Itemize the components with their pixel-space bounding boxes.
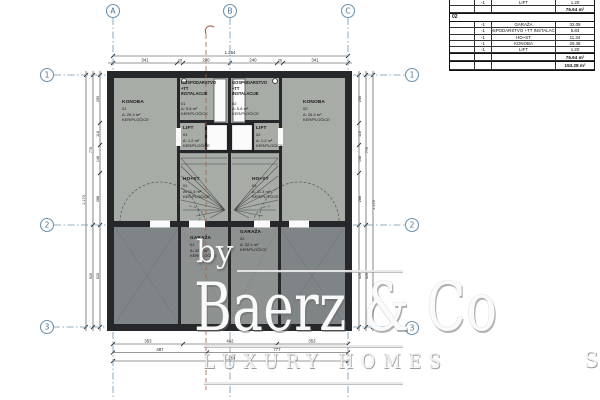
grid-bubble-3-right: 3 — [410, 324, 415, 333]
cell-label: GOSPODARSTVO +TT INSTALACIJE — [492, 28, 556, 33]
cell-unit — [450, 28, 475, 33]
grid-bubble-2-right: 2 — [410, 221, 415, 230]
cell-qty — [475, 62, 492, 69]
dim: 116 — [358, 131, 362, 137]
dim: 250 — [96, 96, 100, 102]
cell-qty: -1 — [475, 41, 492, 46]
cell-subtotal: 76.64 m² — [556, 54, 594, 60]
dim: 240 — [249, 58, 257, 63]
cell-label: HO+ST — [492, 35, 556, 40]
dim: 341 — [311, 58, 319, 63]
cell-qty: -1 — [475, 35, 492, 40]
cell-total: 153.28 m² — [556, 62, 594, 69]
cell-label: LIFT — [492, 0, 556, 5]
grid-bubble-2-left: 2 — [45, 221, 50, 230]
dim: 777 — [273, 347, 281, 352]
grid-bubble-C: C — [345, 7, 350, 16]
cell-unit — [450, 22, 475, 27]
dim: 775 — [89, 147, 93, 153]
grid-bubble-1-right: 1 — [410, 71, 415, 80]
cell-unit — [450, 62, 475, 69]
room-label-lift-02: LIFT 02 A: 1.2 m² KER/PLOČICE — [256, 126, 283, 149]
room-label-garaza-02: GARAŽA 02 A: 32.1 m² KER/PLOČICE — [240, 230, 267, 253]
room-label-lift-01: LIFT 01 A: 1.2 m² KER/PLOČICE — [183, 126, 210, 149]
table-section-02: 02 — [450, 13, 594, 22]
room-label-garaza-01: GARAŽA 01 A: 32.1 m² KER/PLOČICE — [190, 236, 217, 259]
cell-qty: -1 — [475, 47, 492, 52]
table-total-row: 153.28 m² — [450, 61, 594, 70]
cell-value: 5.83 — [556, 28, 594, 33]
cell-unit — [450, 6, 475, 12]
dim: 775 — [365, 147, 369, 153]
grid-bubble-3-left: 3 — [45, 323, 50, 332]
dim: 341 — [141, 58, 149, 63]
dim: 250 — [358, 96, 362, 102]
cell-qty — [475, 6, 492, 12]
cell-qty — [475, 54, 492, 60]
cell-unit — [450, 0, 475, 5]
cell-unit — [450, 41, 475, 46]
room-label-gospodarstvo-02: GOSPODARSTVO +TT INSTALACIJE 02 A: 5.8 m… — [232, 80, 266, 117]
room-label-gospodarstvo-01: GOSPODARSTVO +TT INSTALACIJE 01 A: 5.8 m… — [181, 80, 215, 117]
cell-qty: -1 — [475, 0, 492, 5]
grid-bubble-1-left: 1 — [45, 71, 50, 80]
dim: 520 — [89, 273, 93, 279]
grid-bubble-A: A — [110, 7, 116, 16]
grid-bubble-B: B — [227, 7, 232, 16]
cell-subtotal: 76.64 m² — [556, 6, 594, 12]
cell-label — [492, 6, 556, 12]
cell-value: 11.34 — [556, 35, 594, 40]
dim-left-total: 1.170 — [82, 195, 86, 205]
dim: 288 — [96, 196, 100, 202]
table-subtotal-row: 76.64 m² — [450, 53, 594, 61]
cell-label: LIFT — [492, 47, 556, 52]
cell-unit — [450, 47, 475, 52]
dim: 520 — [365, 273, 369, 279]
floorplan-page: 1.264 341 26 240 240 26 341 353 492 353 … — [0, 0, 600, 400]
cell-label — [492, 54, 556, 60]
table-subtotal-row: 76.64 m² — [450, 6, 594, 13]
dim: 116 — [96, 131, 100, 137]
cell-unit — [450, 54, 475, 60]
dim: 26 — [178, 59, 182, 63]
cell-label: GARAŽA — [492, 22, 556, 27]
room-label-konoba-02: KONOBA 02 A: 26.4 m² KER/PLOČICE — [303, 100, 330, 123]
dim: 520 — [96, 273, 100, 279]
cell-unit — [450, 35, 475, 40]
cell-label: KONOBA — [492, 41, 556, 46]
cell-qty: -1 — [475, 28, 492, 33]
cell-value: 1.20 — [556, 47, 594, 52]
dim: 520 — [358, 273, 362, 279]
cell-value: 32.09 — [556, 22, 594, 27]
dim: 487 — [156, 347, 164, 352]
room-label-host-02: HO+ST 02 A: 11.3 m² KER/PLOČICE — [252, 177, 279, 200]
dim: 26 — [278, 59, 282, 63]
room-label-host-01: HO+ST 01 A: 11.3 m² KER/PLOČICE — [183, 177, 210, 200]
dim: 353 — [308, 339, 316, 344]
dim: 146 — [96, 156, 100, 162]
dim: 146 — [358, 156, 362, 162]
cell-qty: -1 — [475, 22, 492, 27]
cell-value: 26.38 — [556, 41, 594, 46]
cell-label — [492, 62, 556, 69]
cell-value: 1.20 — [556, 0, 594, 5]
area-table: -1 LIFT 1.20 76.64 m² 02 -1 GARAŽA 32.09… — [449, 0, 595, 71]
dim: 288 — [358, 196, 362, 202]
room-label-konoba-01: KONOBA 01 A: 26.4 m² KER/PLOČICE — [122, 100, 149, 123]
dim: 353 — [144, 339, 152, 344]
dim-right-total: 1.170 — [372, 200, 376, 210]
